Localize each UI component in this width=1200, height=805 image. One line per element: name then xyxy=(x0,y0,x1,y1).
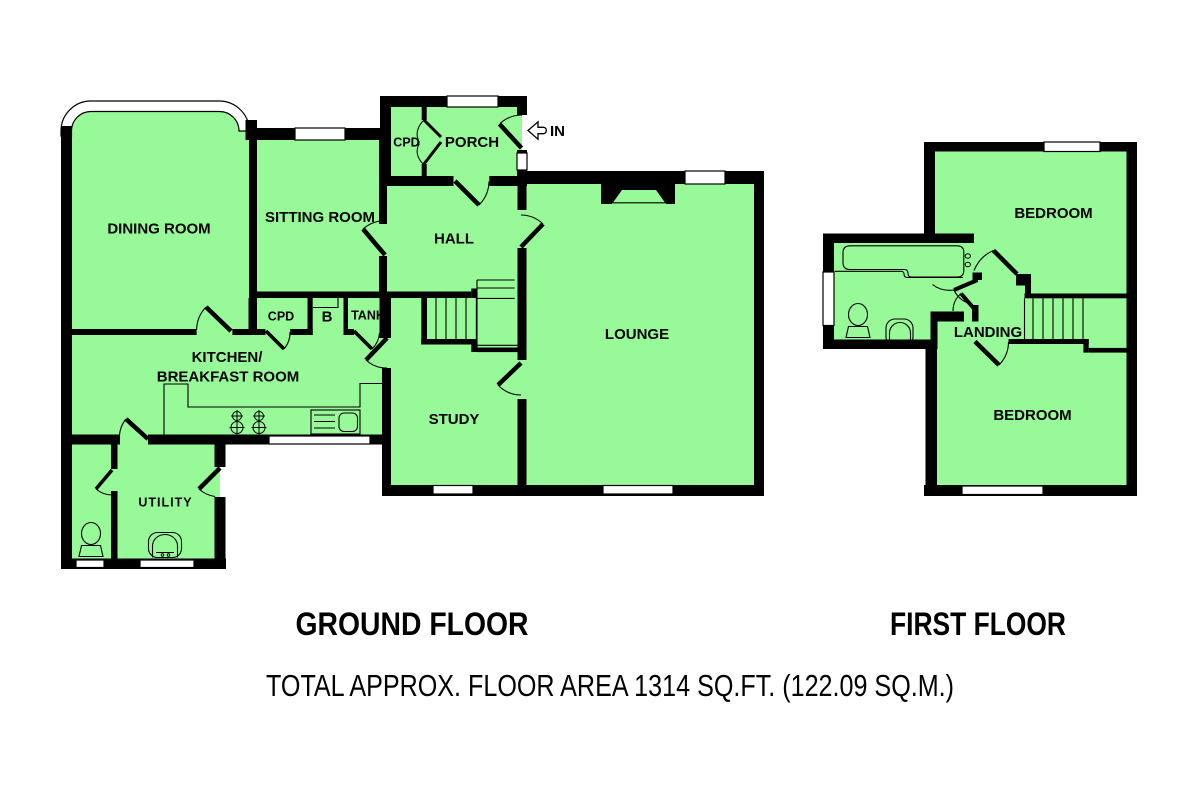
svg-text:LANDING: LANDING xyxy=(954,324,1022,341)
svg-text:HALL: HALL xyxy=(434,231,474,248)
svg-text:IN: IN xyxy=(550,123,565,140)
svg-text:BEDROOM: BEDROOM xyxy=(993,407,1071,424)
svg-text:CPD: CPD xyxy=(393,136,419,150)
svg-text:B: B xyxy=(322,309,333,326)
svg-text:PORCH: PORCH xyxy=(445,134,499,151)
svg-text:TANK: TANK xyxy=(351,309,385,323)
svg-text:SITTING ROOM: SITTING ROOM xyxy=(265,209,375,226)
svg-text:BEDROOM: BEDROOM xyxy=(1014,205,1092,222)
svg-text:FIRST FLOOR: FIRST FLOOR xyxy=(890,606,1066,642)
svg-text:STUDY: STUDY xyxy=(429,411,480,428)
svg-text:BREAKFAST ROOM: BREAKFAST ROOM xyxy=(157,369,300,386)
svg-text:LOUNGE: LOUNGE xyxy=(605,326,669,343)
svg-text:UTILITY: UTILITY xyxy=(138,496,192,510)
svg-text:CPD: CPD xyxy=(268,310,294,324)
svg-text:GROUND FLOOR: GROUND FLOOR xyxy=(296,606,529,642)
svg-text:TOTAL APPROX. FLOOR AREA 1314: TOTAL APPROX. FLOOR AREA 1314 SQ.FT. (12… xyxy=(266,668,954,703)
svg-text:DINING ROOM: DINING ROOM xyxy=(107,221,210,238)
svg-text:KITCHEN/: KITCHEN/ xyxy=(192,349,264,366)
